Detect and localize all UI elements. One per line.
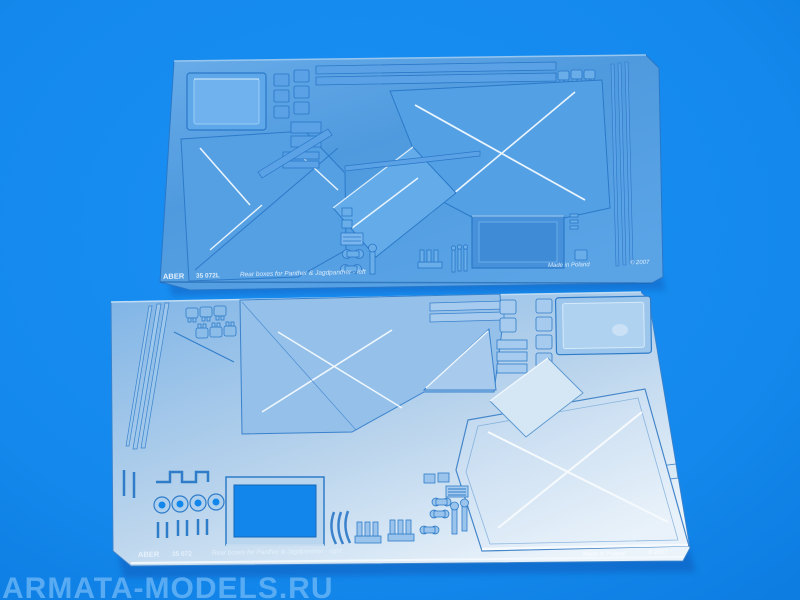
sheet-top-brand: ABER bbox=[163, 272, 185, 281]
photo-etch-sheet-bottom: ABER 35 072 Rear boxes for Panther & Jag… bbox=[111, 292, 696, 578]
sheet-top-made-in: Made in Poland bbox=[548, 262, 590, 269]
sheet-top-dark-edge bbox=[160, 282, 652, 283]
sheet-bottom-made-in: Made in Poland bbox=[583, 551, 625, 558]
sheet-top-box-panel bbox=[187, 73, 266, 130]
sheet-bottom-copyright: © 2007 bbox=[648, 549, 668, 556]
photo-etch-sheet-top: ABER 35 072L Rear boxes for Panther & Ja… bbox=[160, 55, 666, 296]
sheet-top-copyright: © 2007 bbox=[630, 259, 650, 266]
sheet-bottom-part-number: 35 072 bbox=[172, 551, 192, 558]
sheet-top-left-panel bbox=[181, 131, 346, 281]
product-photo: ABER 35 072L Rear boxes for Panther & Ja… bbox=[0, 0, 800, 600]
sheet-bottom-box-panel bbox=[556, 296, 652, 355]
watermark: ARMATA-MODELS.RU bbox=[2, 572, 334, 600]
sheet-top-recessed-frame bbox=[472, 216, 564, 268]
sheet-bottom-cutout-window bbox=[226, 477, 324, 545]
sheet-bottom-brand: ABER bbox=[138, 550, 160, 559]
sheet-top-part-number: 35 072L bbox=[196, 272, 220, 279]
